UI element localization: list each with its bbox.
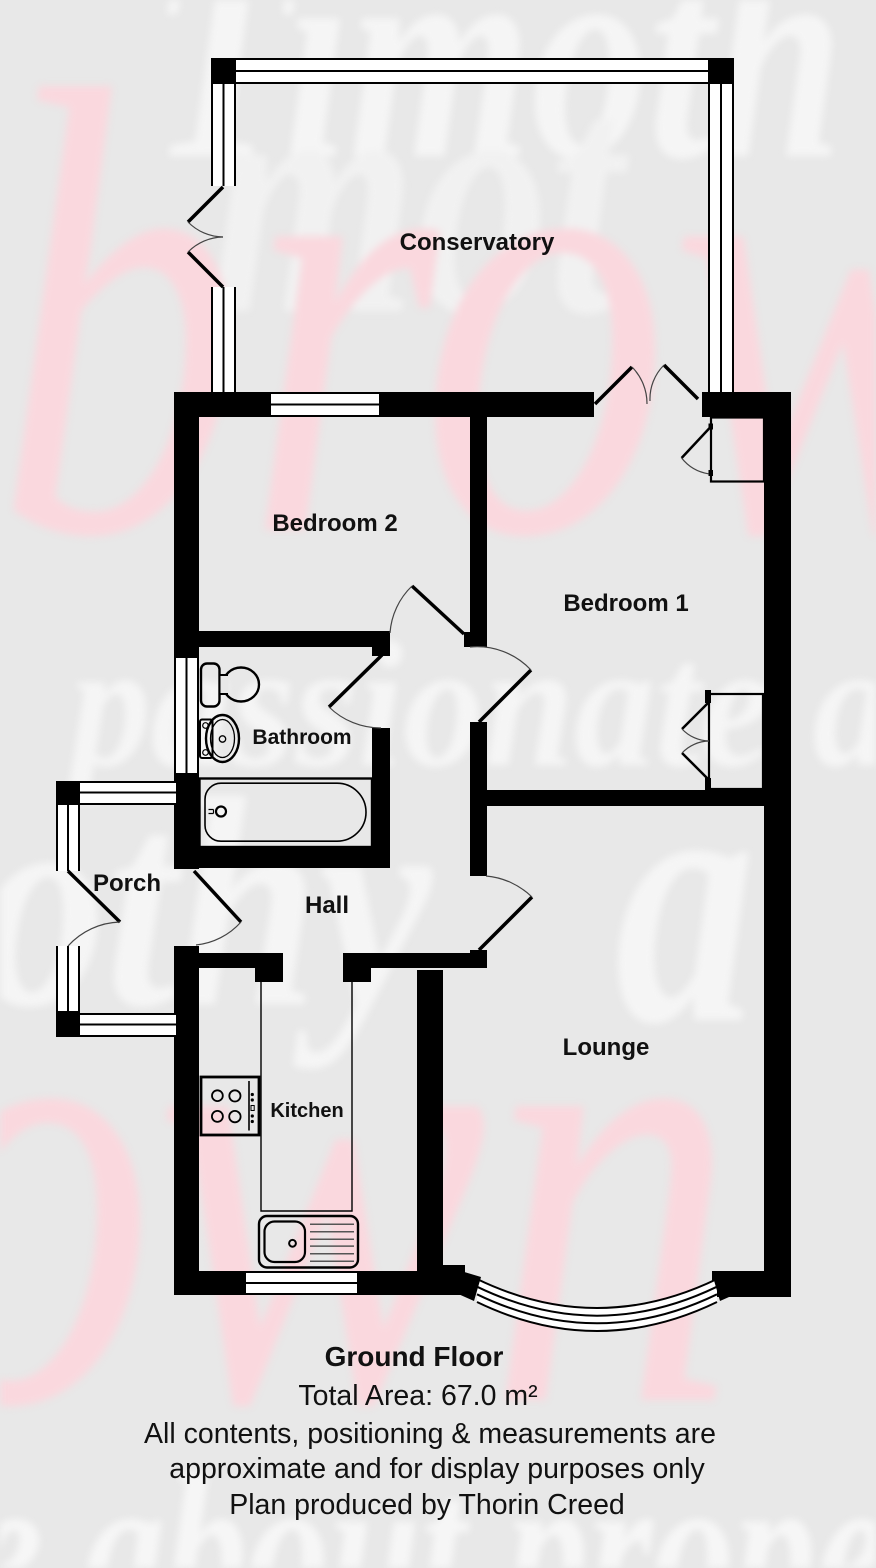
svg-text:Lounge: Lounge (563, 1034, 650, 1061)
svg-text:Kitchen: Kitchen (270, 1100, 343, 1122)
svg-text:Conservatory: Conservatory (400, 229, 555, 256)
svg-text:All contents, positioning & me: All contents, positioning & measurements… (144, 1418, 716, 1450)
svg-text:approximate and for display pu: approximate and for display purposes onl… (169, 1453, 705, 1485)
svg-text:Bedroom 2: Bedroom 2 (272, 510, 397, 537)
svg-text:Total Area: 67.0 m²: Total Area: 67.0 m² (298, 1380, 537, 1412)
svg-text:Porch: Porch (93, 870, 161, 897)
svg-text:Bedroom 1: Bedroom 1 (563, 590, 688, 617)
svg-text:Ground Floor: Ground Floor (325, 1341, 504, 1372)
svg-text:Bathroom: Bathroom (252, 726, 351, 749)
svg-text:Plan produced by Thorin Creed: Plan produced by Thorin Creed (229, 1489, 625, 1521)
svg-text:Hall: Hall (305, 892, 349, 919)
